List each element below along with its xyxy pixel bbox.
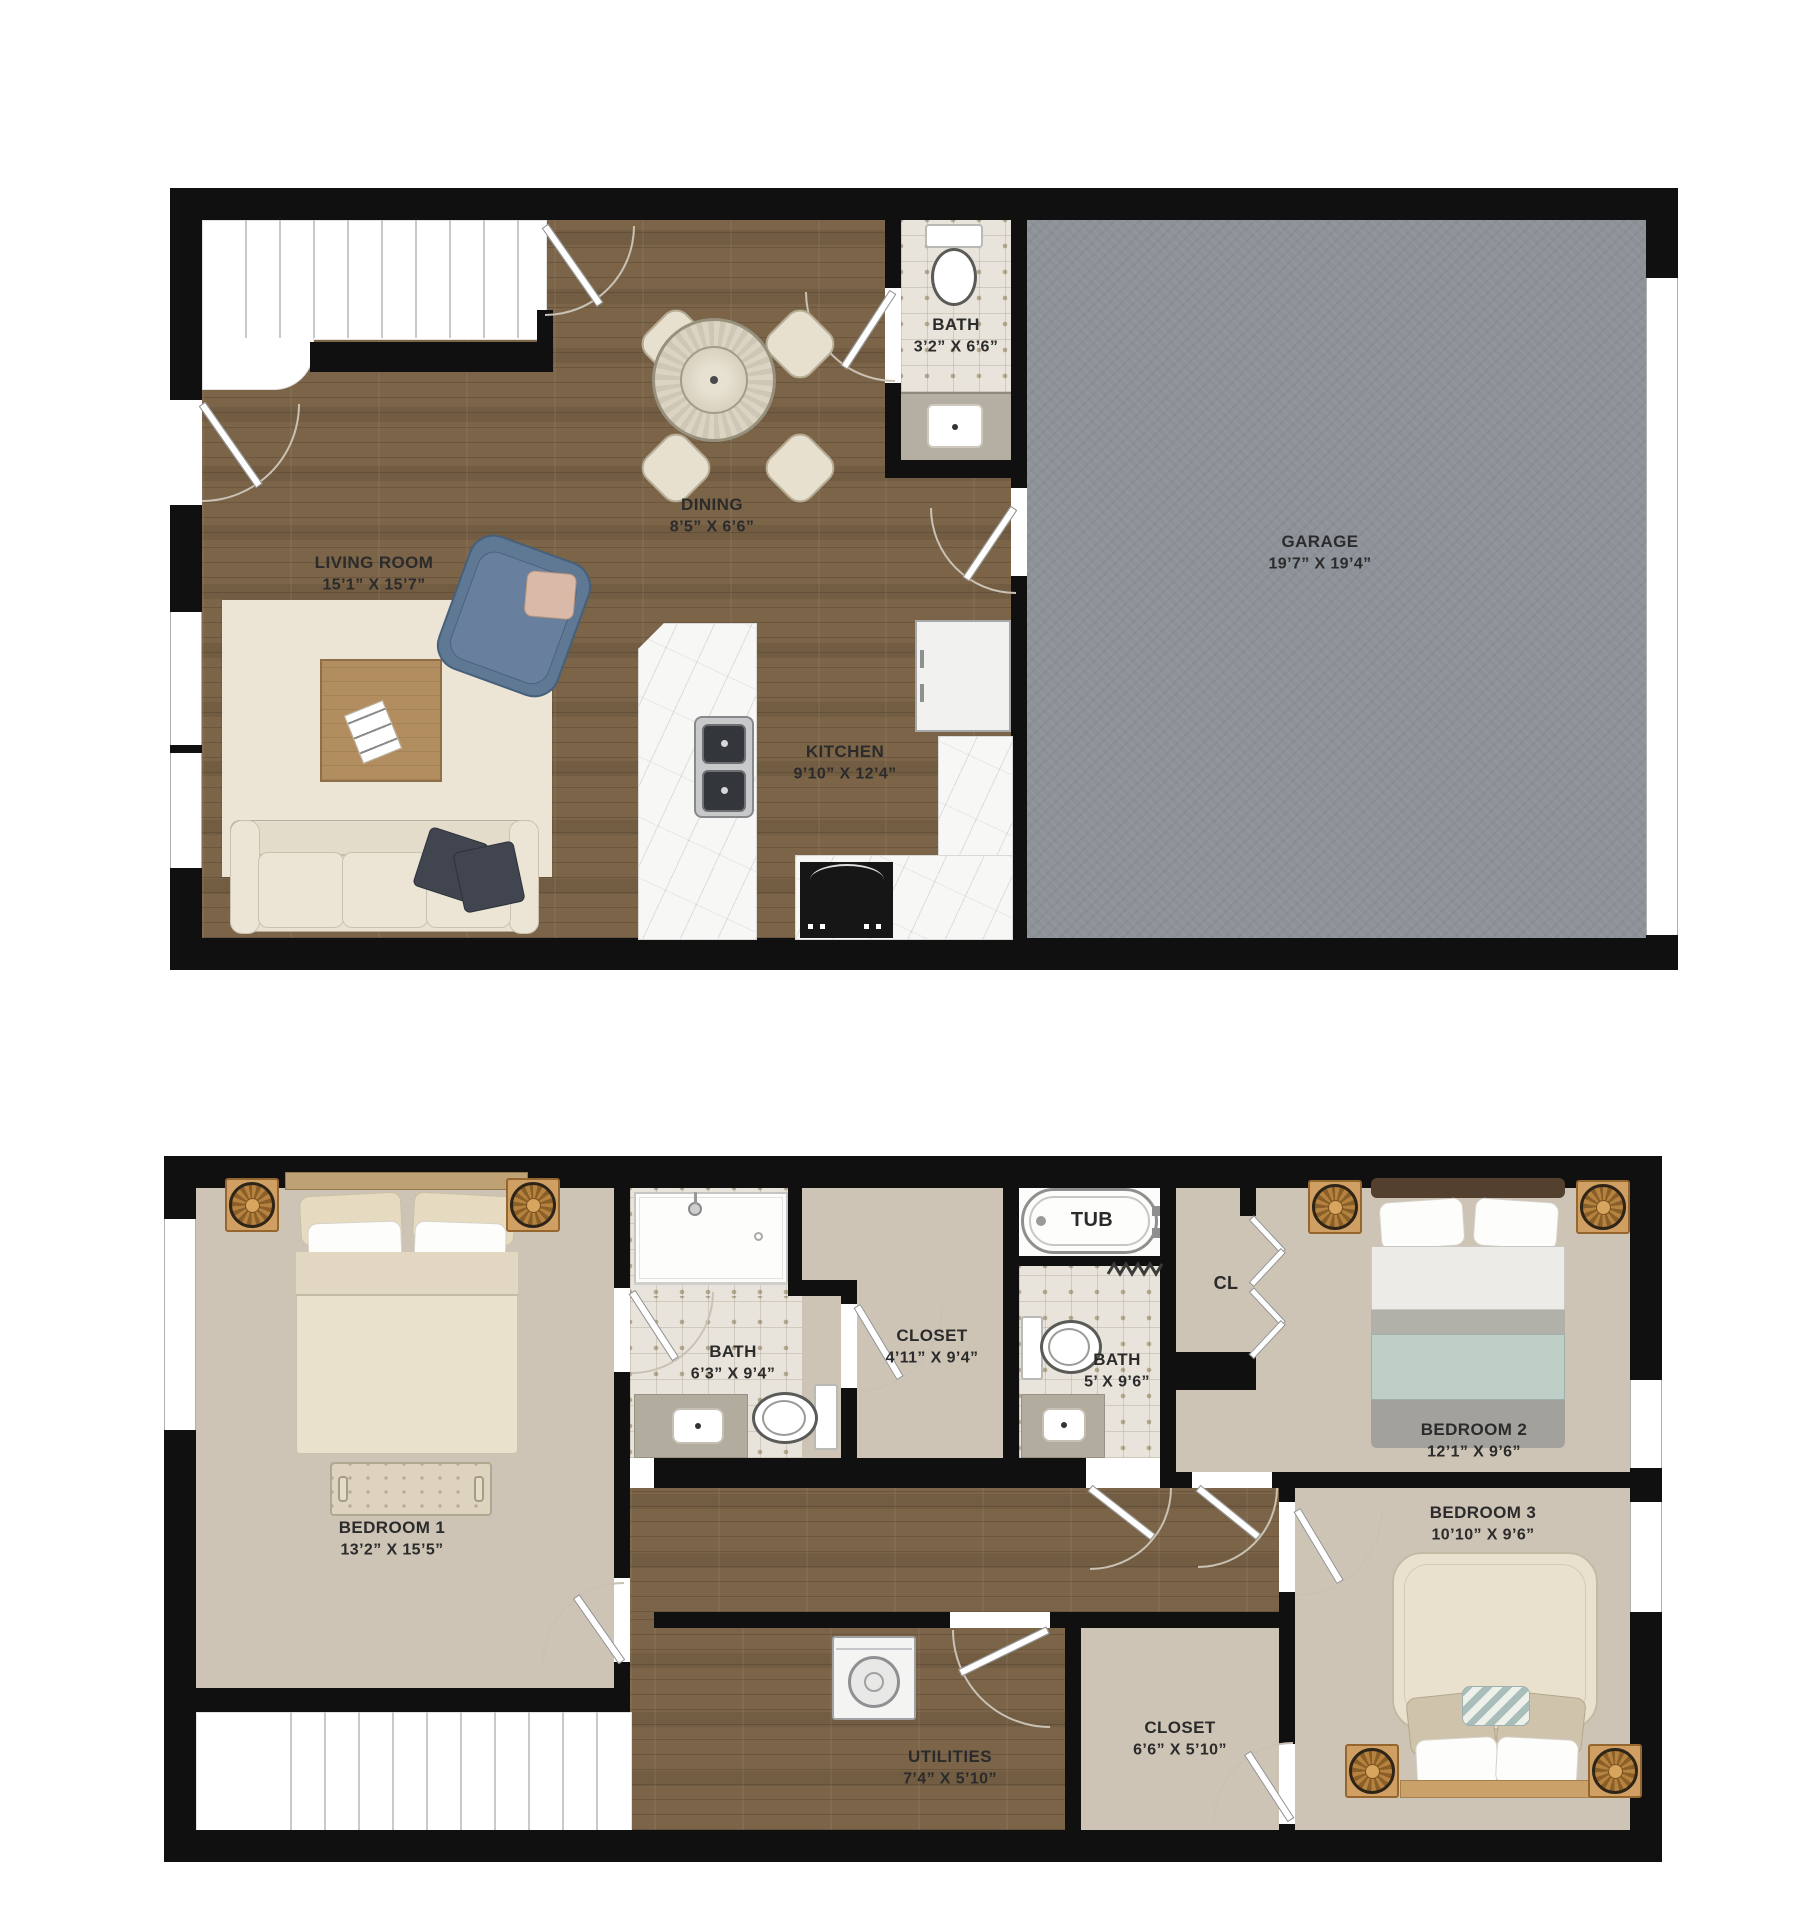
sofa-cushion-1: [258, 852, 344, 928]
floor1-bath-wall-bottom: [885, 460, 1011, 478]
floor1-toilet-bowl: [931, 248, 977, 306]
bedroom3-dims: 10’10” X 9’6”: [1431, 1525, 1534, 1544]
tub-faucet-2: [1152, 1228, 1160, 1238]
bath-main-ensuite-opening: [614, 1288, 630, 1372]
living-room-dims: 15’1” X 15’7”: [322, 575, 425, 594]
bedroom2-window-right: [1630, 1380, 1662, 1468]
bedroom3-speaker-right: [1588, 1744, 1642, 1798]
garage-dims: 19’7” X 19’4”: [1268, 554, 1371, 573]
bath-hall-toilet-seat: [1048, 1328, 1090, 1366]
shower-glass: [634, 1282, 788, 1285]
bedroom3-label: BEDROOM 3: [1430, 1503, 1537, 1523]
bedroom2-door-opening: [1192, 1472, 1272, 1488]
bath-hall-wall-left: [1003, 1188, 1019, 1458]
bath-main-sink-drain: [695, 1423, 701, 1429]
fan-icon: [1580, 1184, 1626, 1230]
bedroom1-bench-handle-left: [338, 1476, 348, 1502]
fan-icon: [1312, 1184, 1358, 1230]
tub-label: TUB: [1071, 1208, 1113, 1232]
floor1-bath-label: BATH: [932, 315, 980, 335]
fridge-handle-2: [920, 684, 924, 702]
bedroom1-headboard: [285, 1172, 528, 1190]
bath-main-dims: 6’3” X 9’4”: [691, 1364, 775, 1383]
bedroom1-window-left: [164, 1219, 196, 1430]
bedroom2-pillow-1: [1378, 1197, 1465, 1251]
speaker-icon: [1349, 1748, 1395, 1794]
bath-main-closet-wall-upper: [788, 1188, 802, 1280]
bedroom3-pillow-accent: [1462, 1686, 1530, 1726]
bedroom2-nightstand-left: [1308, 1180, 1362, 1234]
floor1-stair-wall: [310, 342, 553, 372]
bedroom1-bench: [330, 1462, 492, 1516]
bedroom1-label: BEDROOM 1: [339, 1518, 446, 1538]
closet-main-dims: 4’11” X 9’4”: [886, 1348, 979, 1367]
bedroom1-dims: 13’2” X 15’5”: [340, 1540, 443, 1559]
bedroom3-window-right: [1630, 1502, 1662, 1612]
tub-drain: [1036, 1216, 1046, 1226]
dining-dims: 8’5” X 6’6”: [670, 517, 754, 536]
hallway-floor: [630, 1488, 1279, 1612]
fan-icon: [229, 1182, 275, 1228]
hallway-floor-column: [630, 1612, 654, 1830]
washer-panel: [836, 1640, 912, 1650]
garage-door-opening: [1646, 278, 1678, 935]
floor1-bath-dims: 3’2” X 6’6”: [914, 337, 998, 356]
shower-curtain-icon: [1106, 1258, 1164, 1280]
shower-head-icon: [688, 1202, 702, 1216]
fridge: [915, 620, 1011, 732]
bedroom1-bench-handle-right: [474, 1476, 484, 1502]
bedroom3-door-opening: [1279, 1502, 1295, 1592]
bedroom2-dims: 12’1” X 9’6”: [1427, 1442, 1521, 1461]
bath-hall-sink-drain: [1061, 1422, 1067, 1428]
bedroom2-nightstand-right: [1576, 1180, 1630, 1234]
bath-main-toilet-seat: [762, 1400, 806, 1436]
bedroom2-bedroom3-wall: [1279, 1472, 1630, 1488]
utilities-label: UTILITIES: [908, 1747, 992, 1767]
living-room-label: LIVING ROOM: [315, 553, 434, 573]
closet-main-door-opening: [841, 1304, 857, 1388]
bath-main-closet-wall-step: [788, 1280, 857, 1296]
bedroom3-speaker-left: [1345, 1744, 1399, 1798]
bath-hall-label: BATH: [1093, 1350, 1141, 1370]
utilities-door-opening: [950, 1612, 1050, 1628]
bath-hall-dims: 5’ X 9’6”: [1084, 1372, 1150, 1391]
dining-table-dot: [710, 376, 718, 384]
floor1-stairs-treads: [245, 220, 545, 338]
cl-wall-stub-top: [1240, 1188, 1256, 1216]
floor2-wall-bottom: [164, 1830, 1662, 1862]
floor1-window-left-2: [170, 753, 202, 868]
cl-label: CL: [1214, 1273, 1239, 1295]
bedroom2-pillow-2: [1472, 1197, 1559, 1251]
kitchen-label: KITCHEN: [806, 742, 884, 762]
floor1-bath-wall-left-upper: [885, 220, 901, 288]
bedroom2-headboard: [1371, 1178, 1565, 1198]
floor-plan-canvas: LIVING ROOM 15’1” X 15’7” DINING 8’5” X …: [0, 0, 1817, 1920]
front-door-opening: [170, 400, 202, 505]
garage-floor: [1027, 220, 1646, 938]
dining-label: DINING: [681, 495, 743, 515]
bedroom1-blanket-fold: [296, 1252, 518, 1296]
shower-drain: [754, 1232, 763, 1241]
bath-hall-wall-right: [1160, 1188, 1176, 1472]
closet-main-label: CLOSET: [896, 1326, 967, 1346]
floor1-wall-bottom: [170, 938, 1678, 970]
bedroom2-bed-teal-blanket: [1371, 1334, 1565, 1400]
bedroom2-bed-band: [1371, 1310, 1565, 1334]
bath-main-label: BATH: [709, 1342, 757, 1362]
closet-hall-label: CLOSET: [1144, 1718, 1215, 1738]
floor2-stairs-treads: [290, 1712, 630, 1830]
floor1-bath-sink-drain: [952, 424, 958, 430]
bedroom2-bed-sheet: [1371, 1246, 1565, 1310]
kitchen-sink-drain-1: [721, 740, 728, 747]
armchair-pillow: [523, 570, 577, 620]
closet-hall-dims: 6’6” X 5’10”: [1133, 1740, 1227, 1759]
bedroom1-wall-bottom: [164, 1688, 630, 1712]
floor1-wall-top: [170, 188, 1678, 220]
utilities-closet-wall-divider: [1065, 1628, 1081, 1830]
bedroom2-label: BEDROOM 2: [1421, 1420, 1528, 1440]
garage-label: GARAGE: [1281, 532, 1358, 552]
stove-knob-1: [808, 924, 813, 929]
bedroom1-nightstand-right: [506, 1178, 560, 1232]
kitchen-counter-right: [938, 736, 1013, 864]
speaker-icon: [1592, 1748, 1638, 1794]
fan-icon: [510, 1182, 556, 1228]
floor1-toilet-tank: [925, 224, 983, 248]
sofa-cushion-2: [342, 852, 428, 928]
sofa-armrest-left: [230, 820, 260, 934]
bath-hall-door-opening: [1086, 1458, 1160, 1488]
shower-arm: [694, 1192, 697, 1204]
stove-knob-2: [820, 924, 825, 929]
utilities-dims: 7’4” X 5’10”: [903, 1769, 997, 1788]
fridge-handle-1: [920, 650, 924, 668]
kitchen-sink-drain-2: [721, 787, 728, 794]
stove-knob-4: [876, 924, 881, 929]
kitchen-dims: 9’10” X 12’4”: [793, 764, 896, 783]
floor1-window-left-1: [170, 612, 202, 745]
bedroom1-nightstand-left: [225, 1178, 279, 1232]
cl-wall-bottom: [1176, 1352, 1256, 1390]
sofa-pillow-2: [452, 840, 526, 914]
tub-faucet: [1152, 1206, 1160, 1216]
washer-door-ring: [864, 1672, 884, 1692]
bedroom3-bed-base: [1400, 1780, 1590, 1798]
stove-knob-3: [864, 924, 869, 929]
